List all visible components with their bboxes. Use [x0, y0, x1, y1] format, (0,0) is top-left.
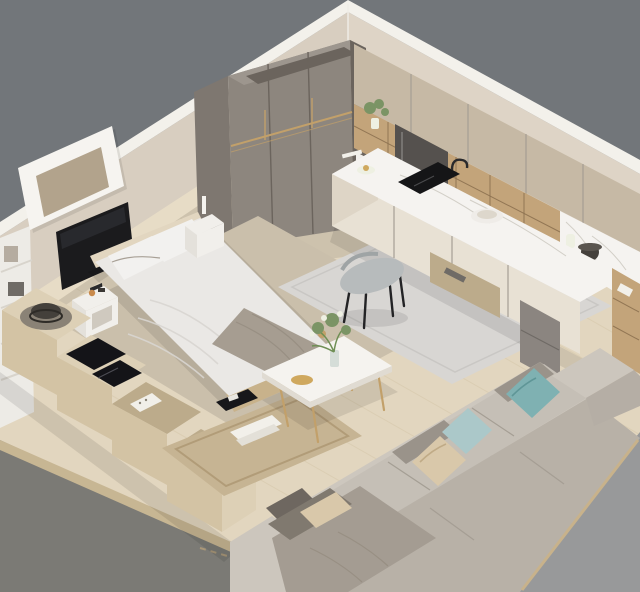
blossom	[321, 315, 327, 321]
vase	[330, 350, 339, 367]
remote-buttons	[139, 402, 141, 404]
blossom	[337, 311, 343, 317]
nightstand-clock	[98, 288, 105, 292]
shelf-item	[4, 246, 18, 262]
right-wood-shelf	[612, 268, 640, 374]
shelf-item	[8, 282, 24, 296]
remote-buttons	[145, 399, 147, 401]
room-render	[0, 0, 640, 592]
leaves	[341, 325, 351, 335]
counter-bowl-inner	[477, 210, 497, 219]
gold-dish	[291, 375, 313, 385]
nightstand-deco	[89, 290, 95, 296]
decor-kettle-lid	[578, 243, 602, 251]
pastry	[363, 165, 369, 171]
plant-leaves	[381, 108, 389, 116]
plant-leaves	[374, 99, 384, 109]
plant-pot	[371, 118, 379, 129]
isometric-room-image	[0, 0, 640, 592]
leaves	[325, 313, 339, 327]
blossom	[309, 331, 314, 336]
bedside-lamp	[202, 196, 206, 214]
